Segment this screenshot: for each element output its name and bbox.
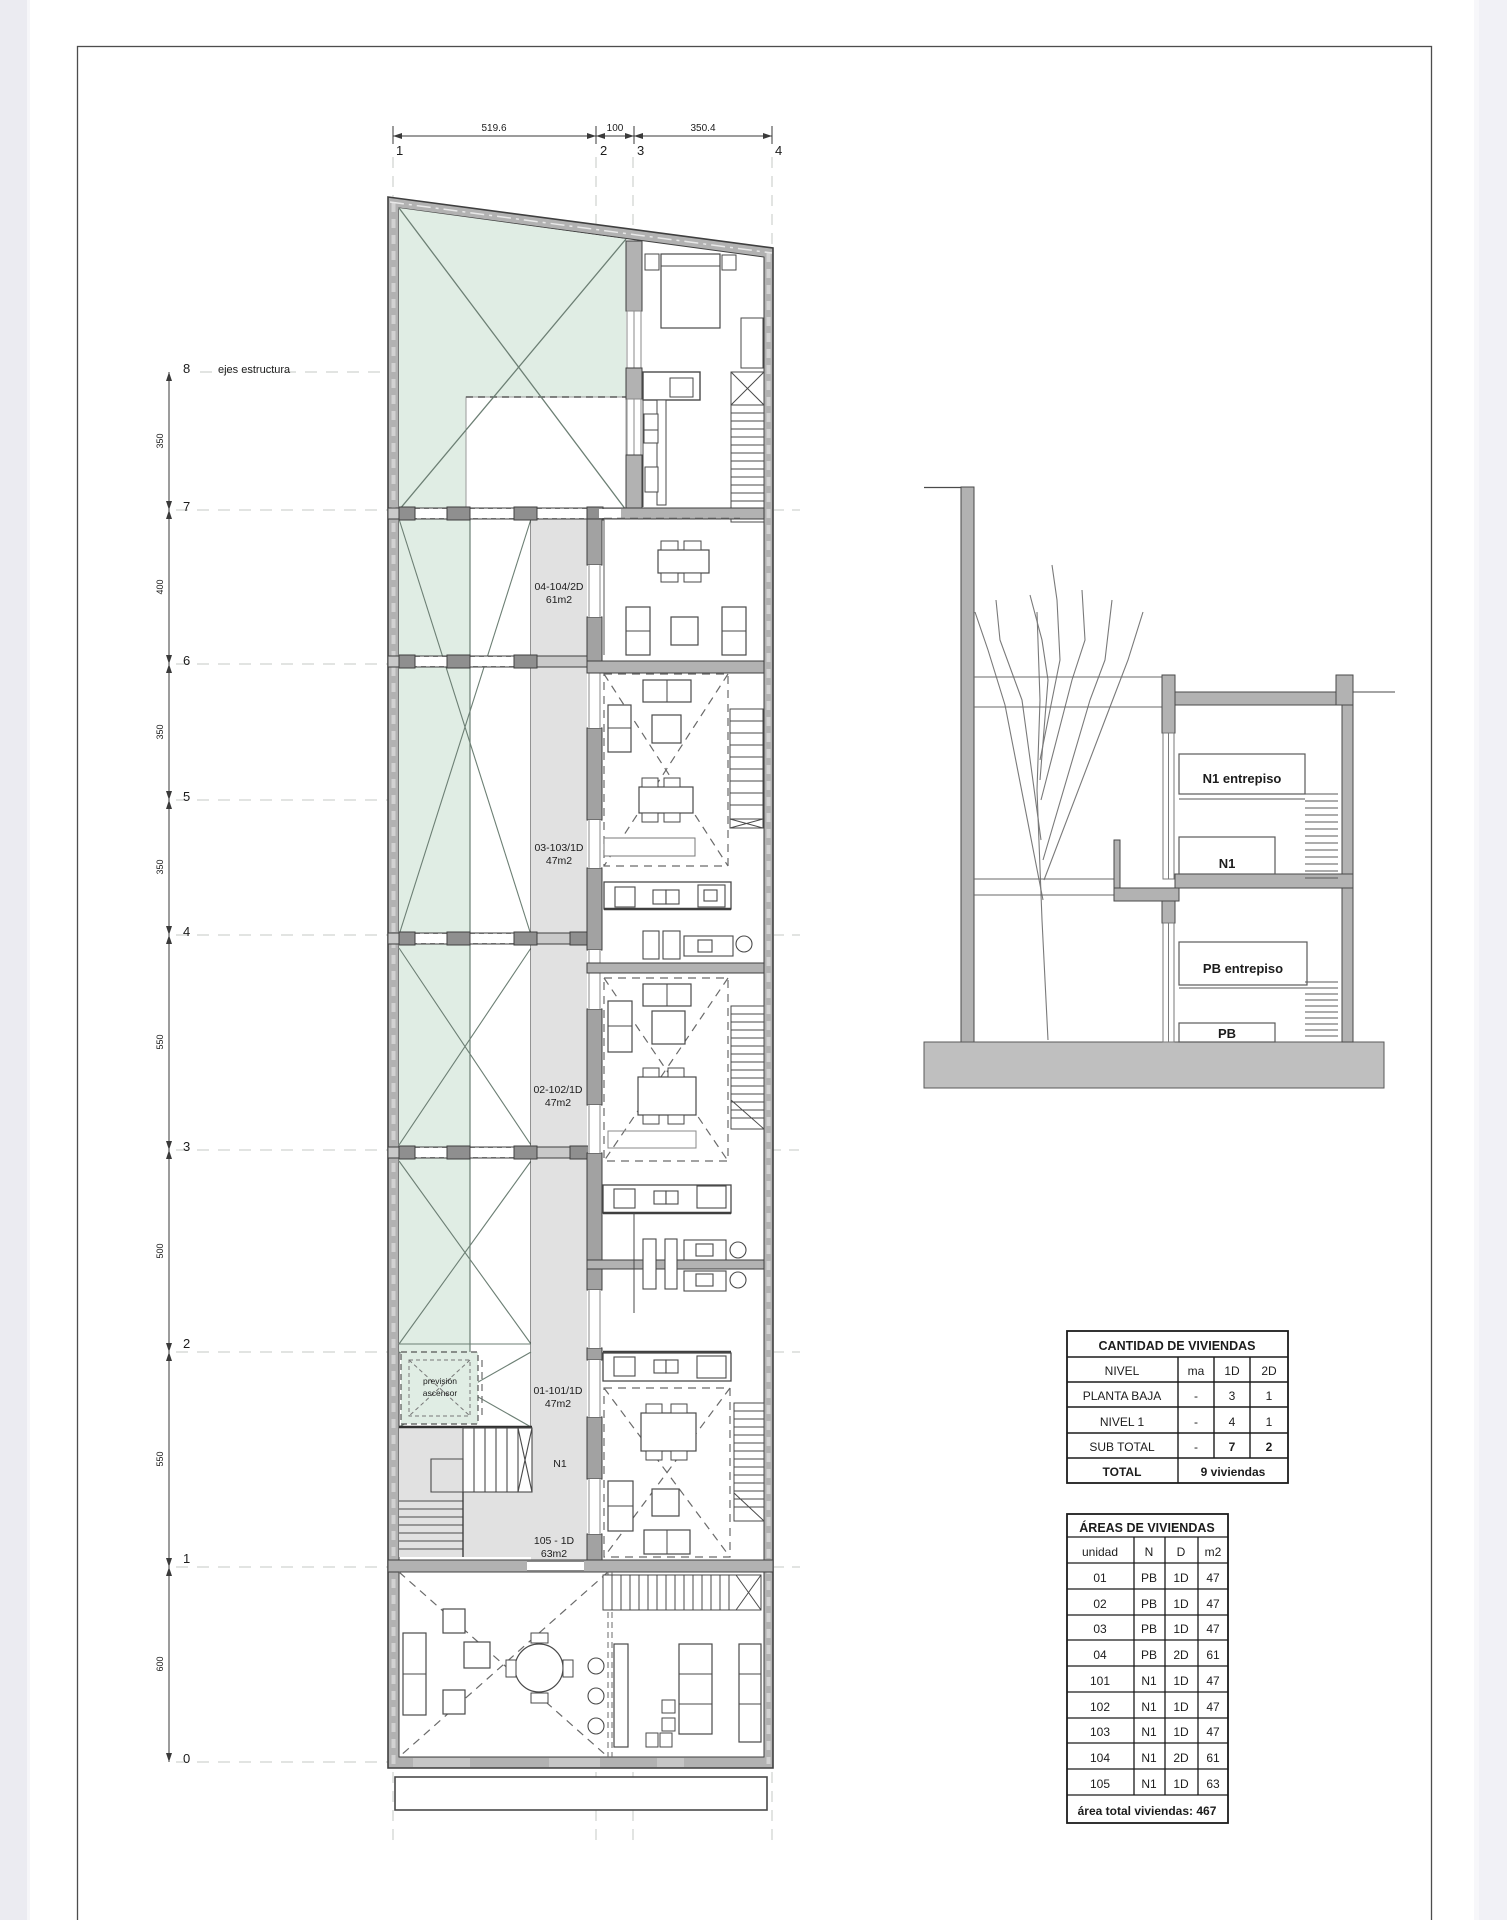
svg-text:101: 101 [1090, 1674, 1110, 1688]
svg-text:550: 550 [155, 1451, 165, 1466]
svg-text:63m2: 63m2 [541, 1548, 567, 1560]
svg-text:550: 550 [155, 1034, 165, 1049]
svg-text:SUB TOTAL: SUB TOTAL [1089, 1440, 1155, 1454]
svg-text:1: 1 [1266, 1415, 1273, 1429]
svg-text:PLANTA BAJA: PLANTA BAJA [1083, 1389, 1161, 1403]
svg-text:área total viviendas: 467: área total viviendas: 467 [1078, 1804, 1217, 1818]
svg-text:47: 47 [1206, 1571, 1220, 1585]
svg-text:9 viviendas: 9 viviendas [1201, 1465, 1266, 1479]
svg-text:01-101/1D: 01-101/1D [533, 1385, 582, 1397]
svg-text:47: 47 [1206, 1622, 1220, 1636]
svg-text:1D: 1D [1173, 1571, 1189, 1585]
svg-text:4: 4 [775, 143, 782, 158]
svg-text:350: 350 [155, 433, 165, 448]
svg-text:104: 104 [1090, 1751, 1110, 1765]
svg-text:350.4: 350.4 [690, 123, 715, 134]
svg-text:47: 47 [1206, 1674, 1220, 1688]
svg-text:N1: N1 [553, 1458, 567, 1470]
svg-text:350: 350 [155, 859, 165, 874]
svg-text:PB: PB [1141, 1571, 1157, 1585]
svg-text:1D: 1D [1224, 1364, 1240, 1378]
svg-text:1D: 1D [1173, 1725, 1189, 1739]
svg-text:102: 102 [1090, 1700, 1110, 1714]
svg-text:8: 8 [183, 361, 190, 376]
svg-text:NIVEL: NIVEL [1105, 1364, 1140, 1378]
svg-text:500: 500 [155, 1243, 165, 1258]
svg-text:1: 1 [183, 1551, 190, 1566]
svg-text:600: 600 [155, 1656, 165, 1671]
svg-text:1D: 1D [1173, 1597, 1189, 1611]
svg-text:350: 350 [155, 724, 165, 739]
svg-text:03-103/1D: 03-103/1D [534, 842, 583, 854]
svg-text:04: 04 [1093, 1648, 1107, 1662]
svg-text:D: D [1177, 1545, 1186, 1559]
svg-text:ejes estructura: ejes estructura [218, 364, 291, 376]
svg-text:47m2: 47m2 [545, 1398, 571, 1410]
svg-text:7: 7 [1229, 1440, 1236, 1454]
svg-text:ma: ma [1188, 1364, 1205, 1378]
svg-text:N1: N1 [1141, 1700, 1157, 1714]
svg-text:2: 2 [600, 143, 607, 158]
svg-text:1D: 1D [1173, 1777, 1189, 1791]
svg-text:PB: PB [1141, 1648, 1157, 1662]
svg-text:47: 47 [1206, 1597, 1220, 1611]
svg-text:unidad: unidad [1082, 1545, 1118, 1559]
svg-text:ÁREAS DE VIVIENDAS: ÁREAS DE VIVIENDAS [1079, 1520, 1214, 1535]
svg-text:47m2: 47m2 [545, 1097, 571, 1109]
svg-text:47: 47 [1206, 1725, 1220, 1739]
svg-text:CANTIDAD DE VIVIENDAS: CANTIDAD DE VIVIENDAS [1099, 1339, 1256, 1353]
svg-text:03: 03 [1093, 1622, 1107, 1636]
svg-text:105 - 1D: 105 - 1D [534, 1535, 575, 1547]
svg-text:3: 3 [183, 1139, 190, 1154]
svg-text:2D: 2D [1261, 1364, 1277, 1378]
svg-text:519.6: 519.6 [481, 123, 506, 134]
svg-text:04-104/2D: 04-104/2D [534, 581, 583, 593]
svg-text:N1 entrepiso: N1 entrepiso [1203, 771, 1282, 786]
svg-text:1D: 1D [1173, 1622, 1189, 1636]
svg-text:2: 2 [183, 1336, 190, 1351]
svg-text:400: 400 [155, 579, 165, 594]
svg-text:NIVEL 1: NIVEL 1 [1100, 1415, 1145, 1429]
svg-text:-: - [1194, 1440, 1198, 1454]
svg-text:2D: 2D [1173, 1751, 1189, 1765]
svg-text:1: 1 [1266, 1389, 1273, 1403]
svg-text:-: - [1194, 1415, 1198, 1429]
svg-text:PB: PB [1141, 1597, 1157, 1611]
svg-text:61: 61 [1206, 1751, 1220, 1765]
svg-text:47m2: 47m2 [546, 855, 572, 867]
svg-text:ascensor: ascensor [423, 1388, 458, 1398]
svg-text:N1: N1 [1141, 1751, 1157, 1765]
svg-text:47: 47 [1206, 1700, 1220, 1714]
svg-text:61: 61 [1206, 1648, 1220, 1662]
svg-text:N1: N1 [1141, 1674, 1157, 1688]
svg-text:3: 3 [1229, 1389, 1236, 1403]
svg-text:3: 3 [637, 143, 644, 158]
svg-text:105: 105 [1090, 1777, 1110, 1791]
svg-text:N1: N1 [1219, 856, 1236, 871]
svg-text:103: 103 [1090, 1725, 1110, 1739]
svg-text:01: 01 [1093, 1571, 1107, 1585]
svg-text:02-102/1D: 02-102/1D [533, 1084, 582, 1096]
svg-text:4: 4 [183, 924, 190, 939]
svg-text:PB entrepiso: PB entrepiso [1203, 961, 1283, 976]
svg-text:m2: m2 [1205, 1545, 1222, 1559]
svg-text:N: N [1145, 1545, 1154, 1559]
svg-text:-: - [1194, 1389, 1198, 1403]
svg-text:100: 100 [607, 123, 624, 134]
svg-text:1: 1 [396, 143, 403, 158]
svg-text:61m2: 61m2 [546, 594, 572, 606]
svg-text:2: 2 [1266, 1440, 1273, 1454]
svg-text:2D: 2D [1173, 1648, 1189, 1662]
svg-text:63: 63 [1206, 1777, 1220, 1791]
svg-text:6: 6 [183, 653, 190, 668]
svg-text:PB: PB [1141, 1622, 1157, 1636]
svg-text:1D: 1D [1173, 1700, 1189, 1714]
svg-text:TOTAL: TOTAL [1103, 1465, 1142, 1479]
svg-text:5: 5 [183, 789, 190, 804]
svg-text:N1: N1 [1141, 1725, 1157, 1739]
svg-text:02: 02 [1093, 1597, 1107, 1611]
svg-text:1D: 1D [1173, 1674, 1189, 1688]
svg-text:4: 4 [1229, 1415, 1236, 1429]
svg-text:N1: N1 [1141, 1777, 1157, 1791]
svg-text:previsión: previsión [423, 1376, 457, 1386]
svg-text:0: 0 [183, 1751, 190, 1766]
svg-text:7: 7 [183, 499, 190, 514]
svg-text:PB: PB [1218, 1026, 1236, 1041]
